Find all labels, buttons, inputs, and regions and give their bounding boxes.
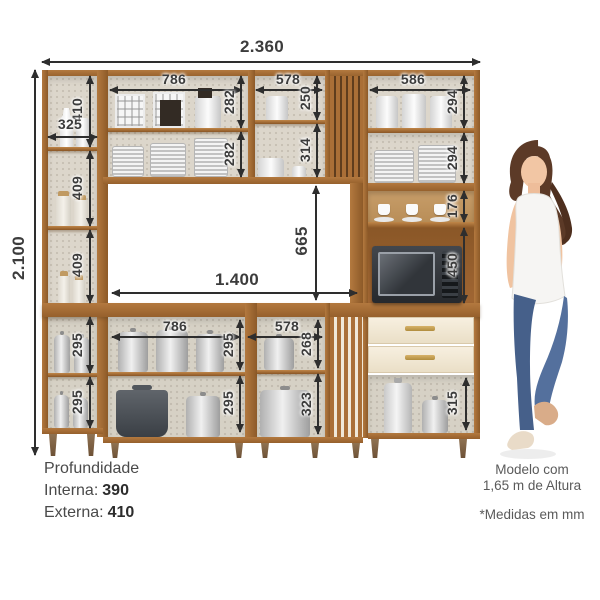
dim-upper-center-width: 786 (162, 71, 186, 87)
storage-box (195, 96, 221, 128)
dim-line (317, 320, 319, 368)
plate-stack (374, 150, 414, 183)
dim-open-width: 1.400 (215, 270, 259, 290)
dim-line (112, 292, 357, 294)
dim-hutch-width: 586 (401, 71, 425, 87)
cabinet-leg (110, 443, 120, 458)
dim-lower-mid-sec1: 268 (298, 332, 314, 356)
wire-basket-bottles (153, 92, 185, 128)
dim-lower-center-width: 786 (163, 318, 187, 334)
dim-line (463, 228, 465, 303)
cup-and-saucer (402, 204, 422, 222)
shoe (534, 402, 558, 425)
dim-upper-mid-sec2: 314 (297, 138, 313, 162)
lower-divider (245, 303, 257, 437)
dim-left-low1-height: 295 (69, 333, 85, 357)
model-photo (484, 138, 596, 462)
dim-line (89, 230, 91, 303)
dim-left-mid2-height: 409 (69, 253, 85, 277)
dim-left-mid1-height: 409 (69, 176, 85, 200)
dim-lower-center-sec1: 295 (220, 333, 236, 357)
kettle (118, 332, 148, 372)
plate-stack (150, 143, 186, 177)
units-note: *Medidas em mm (468, 507, 596, 522)
slatted-panel-top (330, 76, 363, 177)
canister (54, 395, 69, 428)
coffee-percolator (384, 383, 412, 433)
small-jar (58, 276, 70, 303)
dim-left-inner-width: 325 (58, 116, 82, 132)
counter-band (42, 303, 480, 317)
dim-hutch-sec3: 176 (444, 194, 460, 218)
jeans-leg (514, 294, 536, 430)
dim-lower-center-sec2: 295 (220, 391, 236, 415)
lower-bottom-band (103, 437, 363, 443)
dim-line (89, 317, 91, 373)
dim-line (240, 132, 242, 177)
drawer-unit-bottom-band (368, 433, 480, 439)
dim-hutch-niche: 450 (444, 253, 460, 277)
dim-line (465, 378, 467, 430)
depth-external: Externa:410 (44, 502, 139, 524)
cabinet-leg (48, 434, 58, 456)
dim-line-total-width (42, 61, 480, 63)
dim-line (316, 76, 318, 120)
storage-jar (56, 196, 71, 226)
drawer-handle (405, 326, 435, 331)
hutch-band (368, 183, 474, 191)
dim-line (463, 133, 465, 183)
depth-note: Profundidade Interna:390 Externa:410 (44, 458, 139, 524)
dim-line (240, 76, 242, 128)
dim-left-low2-height: 295 (69, 390, 85, 414)
cabinet-leg (86, 434, 96, 456)
dim-line (315, 186, 317, 300)
teapot (258, 158, 284, 177)
cup (292, 166, 306, 177)
dim-line (239, 376, 241, 432)
kitchen-cabinet-dimension-diagram: 2.360 2.100 410 325 409 409 295 295 786 … (0, 0, 600, 600)
cabinet-leg (260, 443, 270, 458)
pitcher (266, 96, 288, 120)
dim-total-height: 2.100 (9, 236, 29, 280)
dim-upper-mid-sec1: 250 (297, 86, 313, 110)
shelf (108, 128, 248, 132)
shoe (507, 431, 534, 450)
slatted-panel-bottom (330, 317, 363, 443)
shelf (108, 372, 245, 376)
dim-upper-center-sec1: 282 (221, 90, 237, 114)
dim-open-height: 665 (292, 226, 312, 255)
dim-upper-mid-width: 578 (276, 71, 300, 87)
microwave-door (378, 252, 435, 296)
dim-line (463, 191, 465, 222)
cabinet-leg (370, 439, 380, 458)
cabinet-leg (351, 443, 361, 458)
dim-lower-mid-sec2: 323 (298, 392, 314, 416)
kettle (264, 338, 294, 370)
left-column-divider (97, 70, 108, 437)
stock-pot (116, 390, 168, 437)
plate-stack (112, 146, 144, 177)
dim-total-width: 2.360 (240, 37, 284, 57)
cabinet-leg (310, 443, 320, 458)
center-pillar (350, 183, 363, 303)
small-jar (73, 280, 85, 303)
bowl-stack (376, 96, 398, 128)
dim-lower-mid-width: 578 (275, 318, 299, 334)
kettle (186, 396, 220, 437)
dim-hutch-sec2: 294 (444, 146, 460, 170)
dim-line (463, 76, 465, 128)
cabinet-leg (234, 443, 244, 458)
drawer-handle (405, 355, 435, 360)
dim-line-total-height (34, 70, 36, 455)
dim-line (316, 124, 318, 177)
cabinet-leg (458, 439, 468, 458)
model-height-note: Modelo com 1,65 m de Altura (468, 462, 596, 494)
wire-basket (115, 94, 145, 128)
jeans-leg (535, 296, 568, 415)
dim-drawer-shelf: 315 (444, 391, 460, 415)
depth-title: Profundidade (44, 458, 139, 480)
dim-line (48, 136, 97, 138)
depth-internal: Interna:390 (44, 480, 139, 502)
dim-line (89, 151, 91, 226)
dim-upper-center-sec2: 282 (221, 142, 237, 166)
dim-line (317, 374, 319, 434)
right-outer-wall (474, 70, 480, 438)
bowl-stack (402, 94, 426, 128)
upper-bottom-band (103, 177, 363, 184)
cup-and-saucer (374, 204, 394, 222)
dim-hutch-sec1: 294 (444, 90, 460, 114)
dim-line (89, 377, 91, 428)
bottles (160, 100, 181, 126)
dim-line (239, 320, 241, 370)
canister (54, 335, 70, 373)
upper-divider (248, 70, 255, 183)
